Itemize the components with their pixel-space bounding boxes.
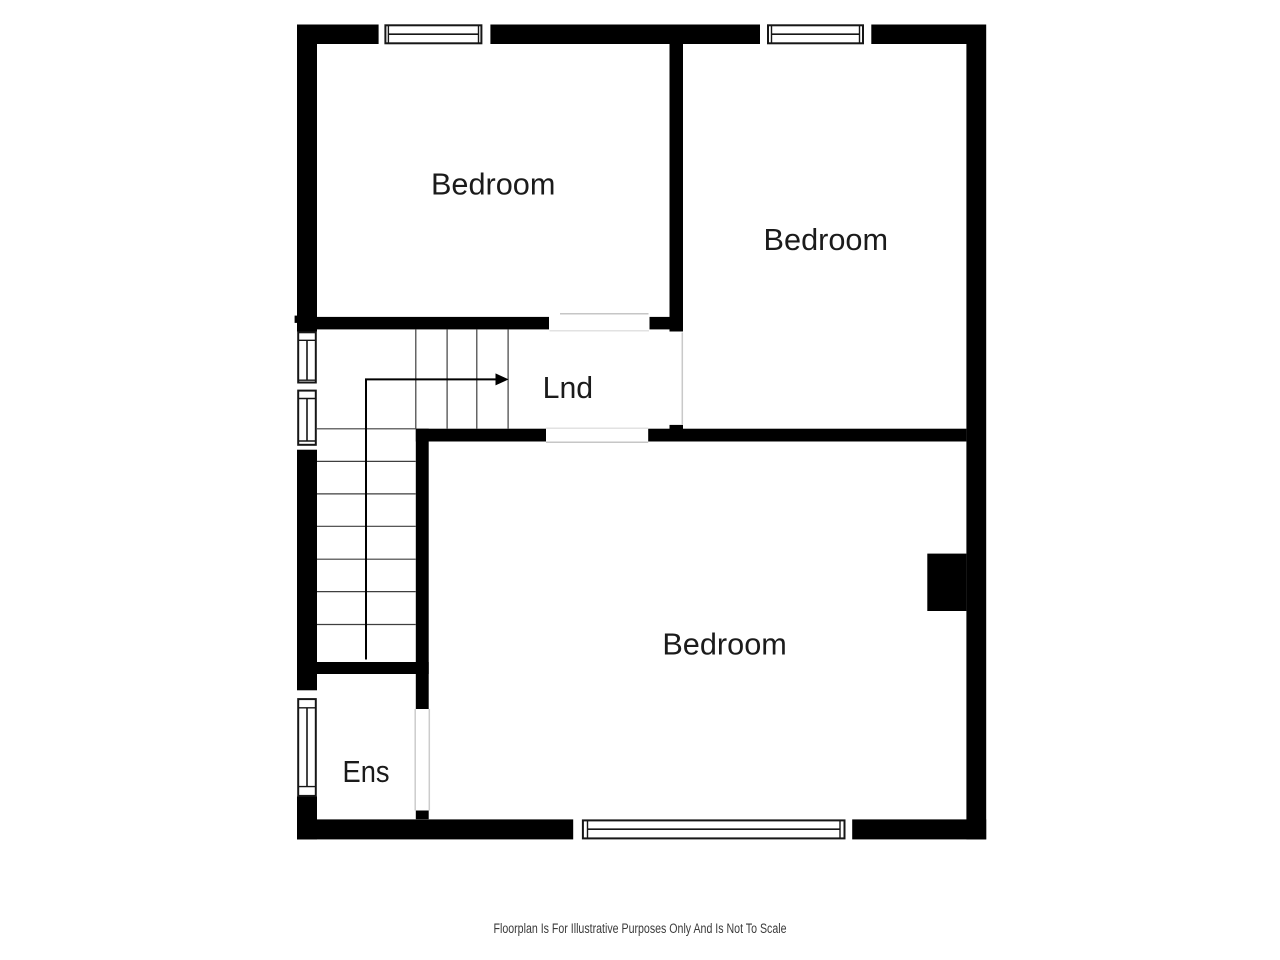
svg-text:Floorplan Is For Illustrative: Floorplan Is For Illustrative Purposes O… (494, 921, 787, 937)
svg-text:Bedroom: Bedroom (662, 626, 787, 661)
svg-text:Ens: Ens (343, 754, 390, 789)
svg-text:Bedroom: Bedroom (431, 167, 556, 202)
svg-text:Lnd: Lnd (543, 370, 594, 405)
svg-text:Bedroom: Bedroom (764, 222, 889, 257)
